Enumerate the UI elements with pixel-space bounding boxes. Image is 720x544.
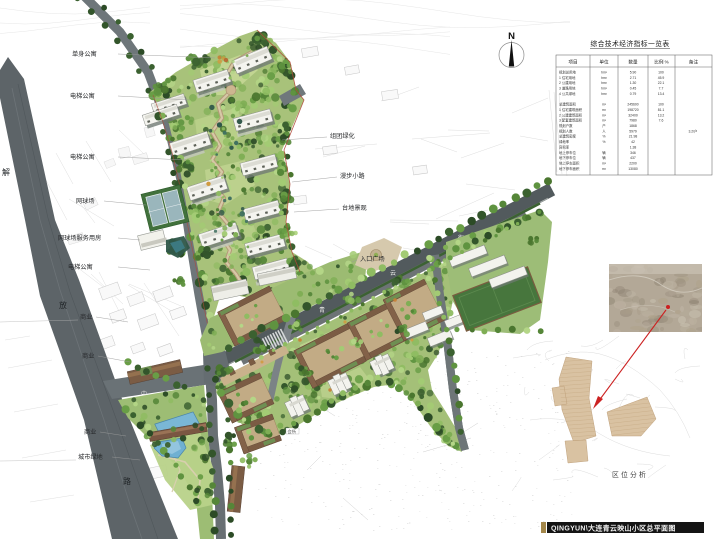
svg-text:城市绿地: 城市绿地 [78, 453, 103, 461]
svg-text:地下停车面积: 地下停车面积 [559, 166, 580, 171]
svg-text:地上停车面积: 地上停车面积 [559, 160, 580, 165]
svg-text:总建筑面积: 总建筑面积 [559, 102, 577, 107]
svg-text:单位: 单位 [599, 59, 609, 66]
svg-text:hm²: hm² [601, 76, 608, 80]
svg-text:地上停车位: 地上停车位 [559, 150, 577, 155]
svg-text:100: 100 [658, 71, 664, 75]
svg-text:路: 路 [123, 476, 131, 486]
svg-text:组团绿化: 组团绿化 [330, 132, 355, 140]
svg-text:备注: 备注 [689, 59, 699, 66]
svg-text:容积率: 容积率 [559, 144, 570, 149]
svg-text:3.2/户: 3.2/户 [688, 128, 697, 133]
svg-text:2200: 2200 [629, 161, 637, 165]
svg-text:1 住宅建筑面积: 1 住宅建筑面积 [559, 107, 583, 112]
svg-text:1.30: 1.30 [630, 81, 637, 85]
svg-text:5.90: 5.90 [630, 71, 637, 75]
svg-text:电梯公寓: 电梯公寓 [70, 153, 95, 161]
svg-text:QINGYUN\大连青云映山小区总平面图: QINGYUN\大连青云映山小区总平面图 [551, 524, 676, 533]
svg-text:5979: 5979 [629, 129, 637, 133]
svg-text:商业: 商业 [80, 313, 92, 321]
svg-text:入口广场: 入口广场 [360, 255, 385, 263]
svg-text:商业: 商业 [84, 428, 96, 436]
svg-text:网球场: 网球场 [76, 197, 95, 205]
svg-text:台地景观: 台地景观 [342, 204, 367, 212]
svg-text:245600: 245600 [627, 103, 638, 107]
svg-text:13.2: 13.2 [658, 113, 665, 117]
svg-text:1868: 1868 [629, 124, 637, 128]
svg-text:13.4: 13.4 [658, 92, 665, 96]
svg-text:4 公共绿地: 4 公共绿地 [559, 91, 576, 96]
svg-text:437: 437 [630, 156, 636, 160]
svg-text:32400: 32400 [628, 113, 638, 117]
svg-text:数量: 数量 [628, 59, 638, 66]
svg-text:商业: 商业 [82, 352, 94, 360]
svg-text:单身公寓: 单身公寓 [72, 50, 97, 58]
svg-text:绿地率: 绿地率 [559, 139, 570, 144]
svg-text:22.1: 22.1 [658, 81, 665, 85]
svg-text:81.1: 81.1 [658, 108, 665, 112]
svg-text:7.7: 7.7 [659, 87, 664, 91]
svg-text:区位分析: 区位分析 [612, 470, 648, 479]
svg-text:云: 云 [390, 270, 396, 277]
svg-text:hm²: hm² [601, 87, 608, 91]
svg-text:1 住宅用地: 1 住宅用地 [559, 75, 576, 80]
svg-text:45.9: 45.9 [658, 76, 665, 80]
svg-text:2.71: 2.71 [630, 76, 637, 80]
svg-text:电梯公寓: 电梯公寓 [70, 92, 95, 100]
svg-text:3 道路用地: 3 道路用地 [559, 86, 576, 91]
svg-text:户: 户 [602, 123, 605, 128]
svg-text:3 配套建筑面积: 3 配套建筑面积 [559, 118, 583, 123]
svg-text:解: 解 [2, 167, 10, 177]
svg-text:N: N [508, 31, 515, 42]
svg-text:0.45: 0.45 [630, 87, 637, 91]
svg-text:会所: 会所 [288, 428, 296, 435]
svg-text:hm²: hm² [601, 81, 608, 85]
svg-text:网球场服务用房: 网球场服务用房 [58, 234, 101, 242]
svg-text:21.98: 21.98 [629, 135, 638, 139]
svg-text:电梯公寓: 电梯公寓 [68, 263, 93, 271]
svg-text:7.6: 7.6 [659, 119, 664, 123]
svg-text:346: 346 [630, 151, 636, 155]
svg-text:2 公建建筑面积: 2 公建建筑面积 [559, 112, 583, 117]
svg-text:地下停车位: 地下停车位 [559, 155, 577, 160]
svg-text:2 公建用地: 2 公建用地 [559, 80, 576, 85]
svg-text:1.38: 1.38 [630, 145, 637, 149]
svg-text:100: 100 [658, 103, 664, 107]
svg-text:42: 42 [631, 140, 635, 144]
svg-text:7980: 7980 [629, 119, 637, 123]
svg-text:13080: 13080 [628, 167, 638, 171]
svg-text:规划总用地: 规划总用地 [559, 70, 577, 75]
svg-text:放: 放 [59, 300, 67, 310]
svg-text:%: % [602, 135, 605, 139]
svg-text:青: 青 [319, 306, 325, 314]
svg-text:漫步小路: 漫步小路 [340, 172, 366, 180]
svg-text:规划户数: 规划户数 [559, 123, 573, 128]
svg-text:hm²: hm² [601, 71, 608, 75]
svg-text:0.79: 0.79 [630, 92, 637, 96]
svg-text:198720: 198720 [627, 108, 638, 112]
svg-text:%: % [602, 140, 605, 144]
svg-text:综合技术经济指标一览表: 综合技术经济指标一览表 [590, 39, 669, 48]
svg-text:比例 %: 比例 % [654, 59, 669, 66]
svg-text:hm²: hm² [601, 92, 608, 96]
svg-text:总建筑密度: 总建筑密度 [559, 134, 577, 139]
svg-text:规划人数: 规划人数 [559, 128, 573, 133]
